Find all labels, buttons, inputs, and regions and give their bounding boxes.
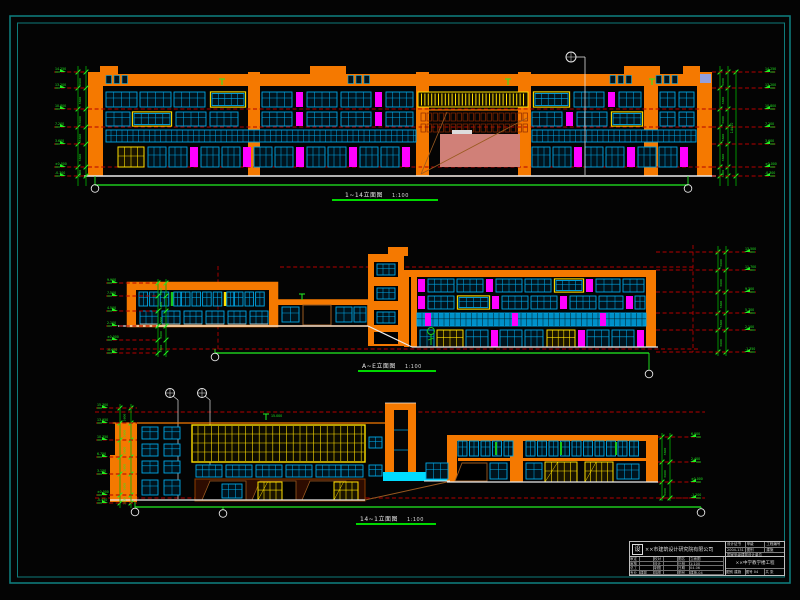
elevation-title-3: 14~1立面图1:100: [360, 514, 424, 523]
pier: [447, 441, 457, 482]
magenta-panel: [574, 147, 582, 167]
magenta-panel: [600, 313, 606, 326]
magenta-panel: [566, 112, 573, 126]
railing: [505, 113, 509, 121]
magenta-panel: [190, 147, 198, 167]
parapet-window: [656, 76, 662, 84]
dim-text: 3.150: [97, 469, 106, 473]
magenta-panel: [491, 330, 498, 347]
window: [638, 147, 656, 167]
window: [254, 147, 272, 167]
sliver: [171, 292, 174, 306]
stage-wall: [440, 134, 520, 167]
window: [360, 147, 378, 167]
magenta-panel: [492, 296, 499, 309]
dim-text: -0.600: [107, 348, 117, 352]
railing: [499, 113, 503, 121]
sliver: [495, 442, 497, 455]
axis-circle: [131, 508, 139, 516]
dim-text: 3600: [663, 448, 667, 456]
railing: [481, 124, 485, 132]
pier: [646, 270, 656, 347]
window: [341, 465, 363, 477]
sliver: [224, 292, 227, 306]
window: [228, 311, 246, 324]
dim-text: 3600: [159, 317, 163, 325]
yellow-door: [545, 462, 577, 482]
railing: [487, 124, 491, 132]
parapet-window: [626, 76, 632, 84]
elevation-title-3-text: 14~1立面图: [360, 516, 398, 523]
sheet-number-cell: 共 张: [765, 569, 784, 575]
magenta-panel: [243, 147, 251, 167]
axis-circle: [219, 510, 227, 518]
dim-text: 11.700: [745, 265, 756, 269]
magenta-panel: [626, 296, 633, 309]
magenta-panel: [560, 296, 567, 309]
magenta-panel: [418, 279, 425, 292]
signature-grid: 审定校对图名立面图审核设计比例1:100总工制图日期04.06专业建筑描图图号建…: [630, 557, 726, 575]
window: [377, 288, 395, 299]
axis-circle: [91, 185, 99, 193]
elevation-3-group: 15.00036003600360036003600360015.30013.9…: [95, 389, 705, 518]
dim-text: 3600: [159, 302, 163, 310]
dim-text: 7.200: [55, 122, 64, 126]
title-block-cell: 甲级: [746, 542, 766, 547]
dim-text: 14.250: [55, 67, 66, 71]
magenta-panel: [586, 279, 593, 292]
axis-circle: [645, 370, 653, 378]
elevation-title-1-text: 1~14立面图: [345, 192, 383, 199]
dim-text: ±0.000: [107, 335, 119, 339]
band: [458, 458, 646, 461]
window: [106, 112, 130, 126]
company-name: ××市建筑设计研究院有限公司: [645, 546, 713, 553]
title-underline-3: [356, 523, 436, 525]
dark-opening: [455, 463, 487, 481]
window: [535, 94, 568, 106]
dim-text: 3600: [123, 414, 127, 422]
dim-text: 10.800: [55, 104, 66, 108]
dim-text: 3600: [663, 488, 667, 496]
magenta-panel: [418, 296, 425, 309]
dim-text: 15.000: [271, 414, 282, 418]
tower-slot: [394, 410, 408, 472]
title-block-cell: 图别: [746, 548, 766, 553]
company-logo: 设: [632, 544, 643, 555]
window: [381, 147, 399, 167]
dim-text: 10.350: [97, 435, 108, 439]
company-cell: 设 ××市建筑设计研究院有限公司: [630, 542, 726, 556]
dim-text: 10.800: [765, 104, 776, 108]
pier: [88, 72, 103, 176]
parapet-window: [618, 76, 624, 84]
magenta-panel: [296, 112, 303, 126]
parapet-window: [356, 76, 362, 84]
window: [585, 147, 603, 167]
window: [222, 147, 240, 167]
magenta-panel: [578, 330, 585, 347]
window: [212, 94, 244, 106]
parapet-window: [610, 76, 616, 84]
magenta-panel: [375, 112, 382, 126]
parapet-window: [364, 76, 370, 84]
sliver: [560, 442, 562, 455]
dim-text: 3600: [719, 259, 723, 267]
parapet-window: [122, 76, 128, 84]
pier: [646, 435, 658, 482]
window: [619, 92, 641, 107]
parapet-window: [672, 76, 678, 84]
dim-text: 3600: [78, 78, 82, 86]
window: [553, 147, 571, 167]
dim-text: 3600: [159, 288, 163, 296]
railing: [433, 113, 437, 121]
window: [525, 330, 543, 347]
window: [532, 147, 550, 167]
railing: [493, 113, 497, 121]
sheet-number-cell: 图别 建施: [726, 569, 746, 575]
window: [275, 147, 293, 167]
magenta-panel: [627, 147, 635, 167]
dim-text: 13.200: [765, 83, 776, 87]
signature-cell: [664, 571, 678, 576]
dim-text: 3600: [719, 320, 723, 328]
drawing-sheet: 36003600360036003600360014.25013.20010.8…: [0, 0, 800, 600]
title-block-body: 审定校对图名立面图审核设计比例1:100总工制图日期04.06专业建筑描图图号建…: [630, 557, 784, 575]
dim-text: 3600: [721, 116, 725, 124]
opening: [303, 305, 331, 325]
dim-text: -0.300: [55, 171, 65, 175]
dim-text: ±0.000: [97, 490, 109, 494]
dim-text: 13.950: [97, 418, 108, 422]
railing: [487, 113, 491, 121]
dim-text: 3600: [123, 430, 127, 438]
pier: [697, 72, 712, 176]
railing: [451, 113, 455, 121]
magenta-panel: [637, 330, 644, 347]
dim-text: 3600: [721, 97, 725, 105]
elevation-title-2-text: A~E立面图: [362, 363, 396, 370]
railing: [433, 124, 437, 132]
signature-cell: 建筑: [640, 571, 654, 576]
magenta-panel: [402, 147, 410, 167]
stage-top: [452, 130, 472, 134]
signature-cell: 图号: [678, 571, 690, 576]
window: [599, 296, 623, 309]
project-cell: ××中学教学楼工程 图别 建施图号 04共 张: [726, 557, 784, 575]
window: [201, 147, 219, 167]
parapet-block: [100, 66, 118, 74]
dim-text: -1.200: [691, 493, 701, 497]
elevation-2-group: 360036003600360036009.9007.5004.5002.100…: [100, 245, 756, 378]
window: [184, 311, 202, 324]
window: [307, 147, 325, 167]
window: [617, 464, 639, 479]
grade-slope: [365, 482, 447, 500]
dim-text: 6.000: [691, 432, 700, 436]
window: [134, 114, 170, 125]
dim-text: ±0.000: [765, 162, 777, 166]
title-block-cell: 2004-131: [726, 548, 746, 553]
dim-text: 13.500: [745, 247, 756, 251]
dim-text: -1.350: [745, 347, 755, 351]
dim-text: 3600: [159, 345, 163, 353]
railing: [493, 124, 497, 132]
elevation-1-group: 36003600360036003600360014.25013.20010.8…: [54, 52, 778, 192]
window: [222, 484, 242, 498]
magenta-panel: [680, 147, 688, 167]
dim-text: 2.400: [691, 457, 700, 461]
pier: [128, 283, 136, 326]
railing: [481, 113, 485, 121]
window: [148, 147, 166, 167]
window: [606, 147, 624, 167]
dim-text: 3600: [78, 97, 82, 105]
parapet-window: [664, 76, 670, 84]
magenta-panel: [296, 92, 303, 107]
ribbon-band: [417, 313, 646, 326]
title-underline-2: [358, 370, 436, 372]
dim-text: 3.600: [55, 139, 64, 143]
band: [128, 283, 277, 290]
dim-text: 3600: [123, 483, 127, 491]
magenta-panel: [486, 279, 493, 292]
parapet-window: [106, 76, 112, 84]
parapet-window: [348, 76, 354, 84]
title-block-head-grid: 设计证书甲级工程编号2004-131图别建施国家甲级建筑设计单位: [726, 542, 784, 556]
dim-text: 3600: [719, 279, 723, 287]
window: [250, 311, 268, 324]
axis-circle: [684, 185, 692, 193]
dim-text: 3600: [78, 116, 82, 124]
parapet-window: [114, 76, 120, 84]
yellow-door: [585, 462, 613, 482]
dim-text: 3600: [719, 339, 723, 347]
parapet-block: [624, 66, 660, 74]
axis-circle: [697, 509, 705, 517]
curtain-wall: [192, 425, 365, 462]
railing: [463, 113, 467, 121]
dim-text: 4.500: [107, 306, 116, 310]
window: [587, 330, 609, 347]
band: [447, 435, 658, 441]
dim-text: 14.250: [765, 67, 776, 71]
cad-viewer-page: { "colors": { "orange": "#f57900", "cyan…: [0, 0, 800, 600]
line: [173, 396, 178, 400]
railing: [511, 113, 515, 121]
dim-text: 14400: [730, 123, 734, 134]
dim-text: 7.500: [107, 291, 116, 295]
pier: [269, 283, 277, 326]
dim-text: ±0.000: [55, 162, 67, 166]
window: [377, 312, 395, 323]
title-block-cell: 建施: [765, 548, 784, 553]
yellow-door: [547, 330, 575, 347]
elevation-title-2: A~E立面图1:100: [362, 361, 422, 370]
window: [328, 147, 346, 167]
window: [377, 264, 395, 275]
magenta-panel: [512, 313, 518, 326]
window: [500, 330, 522, 347]
dim-text: 7.200: [765, 122, 774, 126]
dim-text: 15.300: [97, 403, 108, 407]
dim-text: 3600: [159, 331, 163, 339]
dim-text: ±0.000: [691, 477, 703, 481]
railing: [457, 113, 461, 121]
dim-text: 5.700: [745, 308, 754, 312]
window: [140, 311, 158, 324]
band: [404, 270, 656, 277]
window: [169, 147, 187, 167]
elevation-title-1: 1~14立面图1:100: [345, 190, 409, 199]
dim-text: 3600: [721, 154, 725, 162]
roof-box: [700, 74, 711, 83]
dim-text: 13.200: [55, 83, 66, 87]
magenta-panel: [608, 92, 615, 107]
dim-text: 3600: [663, 470, 667, 478]
dim-text: 3600: [123, 497, 127, 505]
dim-text: 3600: [719, 301, 723, 309]
sliver: [615, 442, 617, 455]
cad-canvas: 36003600360036003600360014.25013.20010.8…: [0, 0, 800, 600]
dim-text: 3600: [721, 78, 725, 86]
window: [659, 147, 677, 167]
magenta-panel: [296, 147, 304, 167]
title-block-cell: 设计证书: [726, 542, 746, 547]
window: [466, 330, 488, 347]
signature-cell: 描图: [654, 571, 664, 576]
window: [612, 330, 634, 347]
line: [205, 396, 210, 400]
project-name: ××中学教学楼工程: [726, 557, 784, 568]
dim-text: -0.450: [97, 498, 107, 502]
parapet-block: [683, 66, 700, 74]
signature-cell: 专业: [630, 571, 640, 576]
dim-text: 3600: [123, 464, 127, 472]
dim-text: 3600: [123, 447, 127, 455]
title-block-header: 设 ××市建筑设计研究院有限公司 设计证书甲级工程编号2004-131图别建施国…: [630, 542, 784, 557]
railing: [469, 113, 473, 121]
window: [426, 463, 448, 479]
railing: [475, 124, 479, 132]
sheet-number-row: 图别 建施图号 04共 张: [726, 568, 784, 575]
window: [623, 279, 644, 292]
magenta-panel: [425, 313, 431, 326]
signature-cell: 建施-04: [690, 571, 724, 576]
window: [206, 311, 224, 324]
railing: [445, 124, 449, 132]
title-block-cell: 工程编号: [765, 542, 784, 547]
title-block: 设 ××市建筑设计研究院有限公司 设计证书甲级工程编号2004-131图别建施国…: [629, 541, 785, 576]
dim-text: -0.300: [765, 171, 775, 175]
parapet-block: [310, 66, 346, 74]
band: [277, 300, 368, 305]
dim-text: 3600: [721, 134, 725, 142]
railing: [439, 113, 443, 121]
sheet-number-cell: 图号 04: [746, 569, 766, 575]
title-underline-1: [332, 199, 438, 201]
axis-circle: [211, 353, 219, 361]
dim-text: 9.300: [745, 287, 754, 291]
dim-text: 2.100: [745, 325, 754, 329]
magenta-panel: [349, 147, 357, 167]
dim-text: 3600: [78, 134, 82, 142]
dim-text: 3600: [78, 154, 82, 162]
dim-text: 6.750: [97, 452, 106, 456]
dim-text: 9.900: [107, 278, 116, 282]
railing: [475, 113, 479, 121]
dim-text: 2.100: [107, 321, 116, 325]
magenta-panel: [375, 92, 382, 107]
window: [596, 279, 620, 292]
dim-text: 3.600: [765, 139, 774, 143]
